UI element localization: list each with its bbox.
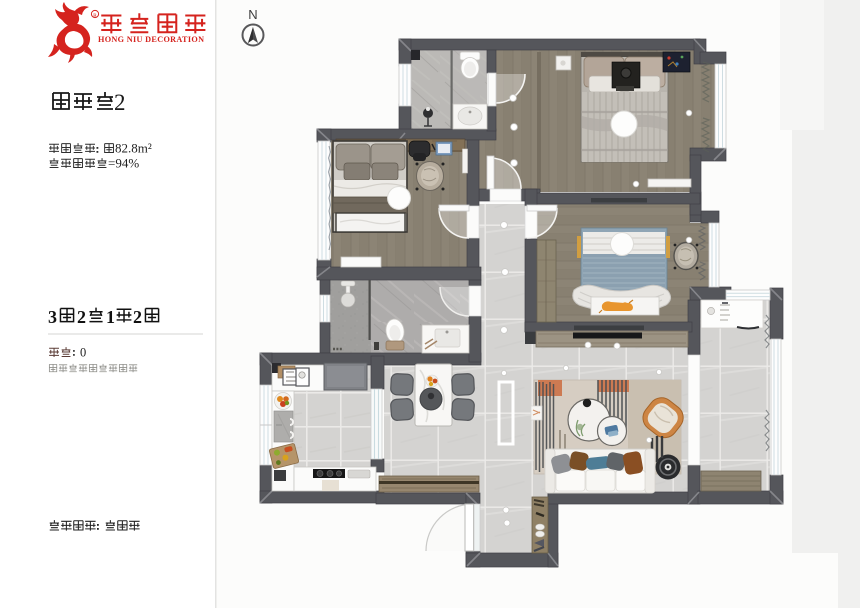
svg-text:82.8m²: 82.8m² [115, 141, 152, 156]
svg-text:HONG NIU DECORATION: HONG NIU DECORATION [98, 35, 204, 44]
svg-text:0: 0 [80, 346, 86, 360]
svg-text:2: 2 [133, 307, 142, 327]
svg-text:2: 2 [114, 90, 126, 115]
svg-text:2: 2 [77, 307, 86, 327]
svg-text:3: 3 [48, 307, 57, 327]
svg-text:=94%: =94% [108, 156, 139, 171]
svg-text:N: N [248, 7, 257, 22]
svg-text:R: R [93, 13, 97, 19]
svg-text:1: 1 [106, 307, 115, 327]
